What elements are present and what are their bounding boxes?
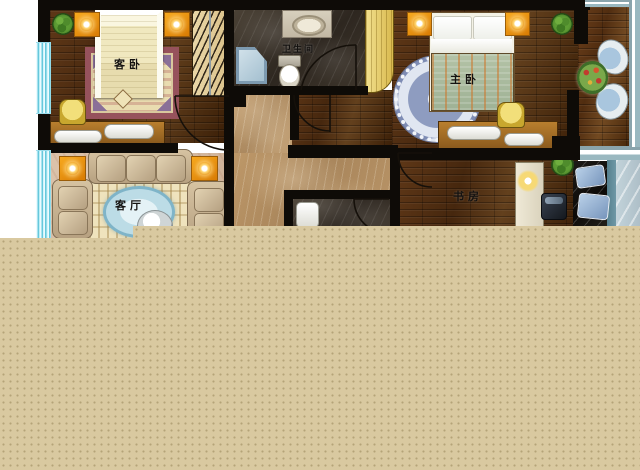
wall-corridor-pillar bbox=[226, 86, 246, 107]
armchair-cushion bbox=[194, 188, 224, 212]
wall-guest-bath bbox=[224, 10, 234, 153]
living-room-window bbox=[36, 150, 51, 241]
desk-lamp bbox=[517, 170, 539, 192]
nightstand-lamp bbox=[505, 12, 530, 36]
sofa-cushion bbox=[96, 155, 126, 182]
curved-cabinet bbox=[365, 8, 394, 93]
sofa-cushion bbox=[156, 155, 186, 182]
guest-bedroom-window bbox=[36, 42, 51, 114]
vanity-chair bbox=[59, 99, 86, 125]
entry-hall-floor bbox=[288, 90, 392, 148]
pillow bbox=[577, 192, 610, 220]
wall-top bbox=[38, 0, 590, 10]
master-dresser-sink bbox=[504, 133, 544, 146]
sofa-cushion bbox=[126, 155, 156, 182]
wall-study-top bbox=[398, 148, 558, 160]
guest-bed bbox=[95, 10, 163, 98]
wall-living-right bbox=[224, 153, 234, 227]
pillow bbox=[575, 164, 607, 189]
balcony-frame-bottom bbox=[580, 146, 640, 160]
study-label: 书房 bbox=[453, 188, 483, 204]
wall-balcony-bottom bbox=[567, 90, 579, 140]
wall-entry-bottom bbox=[288, 145, 398, 158]
guest-bedroom-label: 客卧 bbox=[114, 56, 144, 72]
side-table-lamp bbox=[191, 156, 218, 181]
sofa-three-seat bbox=[88, 149, 193, 184]
wall-entry-left bbox=[290, 95, 299, 140]
potted-plant-icon bbox=[551, 13, 573, 35]
armchair-cushion bbox=[58, 211, 88, 235]
bed-sheet bbox=[431, 39, 512, 53]
wall-study-left bbox=[390, 148, 400, 227]
small-bathroom-fixture bbox=[296, 202, 319, 228]
nightstand-lamp bbox=[407, 12, 432, 36]
nightstand-lamp bbox=[74, 12, 100, 37]
flower-table bbox=[577, 61, 608, 94]
master-bed bbox=[429, 12, 515, 112]
wall-bath-bottom bbox=[234, 86, 368, 95]
dresser-chair bbox=[497, 102, 525, 128]
living-room-label: 客厅 bbox=[115, 197, 145, 213]
master-dresser-tray bbox=[447, 126, 501, 140]
floor-plan: 客卧 卫生间 主卧 客厅 书房 bbox=[0, 0, 640, 470]
guest-vanity-tray bbox=[104, 124, 154, 139]
wall-smallbath-top bbox=[284, 190, 396, 199]
armchair-left bbox=[52, 179, 93, 239]
balcony-window-right bbox=[629, 0, 640, 147]
wall-guest-bottom bbox=[38, 143, 178, 153]
guest-vanity-sink bbox=[54, 130, 102, 143]
tan-overlay-full bbox=[0, 238, 640, 470]
master-bedroom-label: 主卧 bbox=[450, 71, 480, 87]
armchair-cushion bbox=[58, 186, 88, 210]
potted-plant-icon bbox=[52, 13, 74, 35]
side-table-lamp bbox=[59, 156, 86, 181]
bathroom-label: 卫生间 bbox=[282, 42, 315, 55]
wardrobe bbox=[192, 10, 225, 97]
study-window-pane bbox=[616, 160, 640, 227]
wall-smallbath-left bbox=[284, 190, 293, 227]
bathroom-sink bbox=[282, 10, 332, 38]
pillow bbox=[433, 16, 472, 40]
nightstand-lamp bbox=[164, 12, 190, 37]
study-window-glass bbox=[607, 160, 616, 227]
study-chair bbox=[541, 193, 567, 220]
